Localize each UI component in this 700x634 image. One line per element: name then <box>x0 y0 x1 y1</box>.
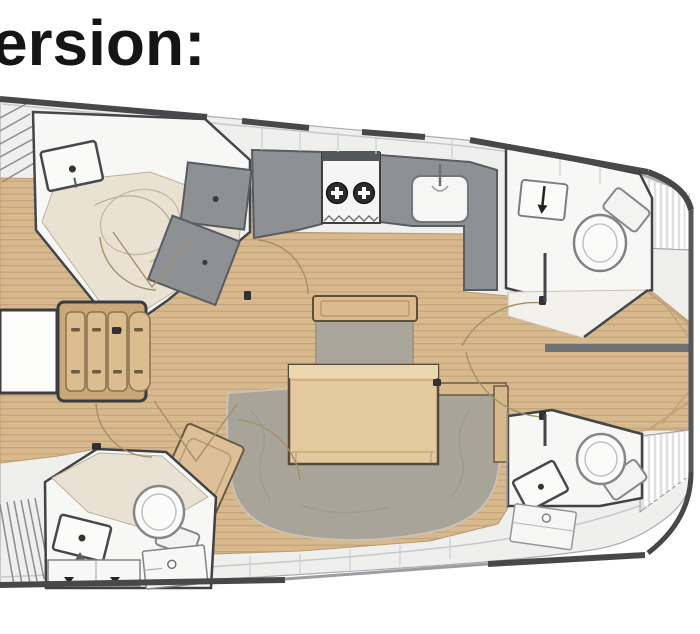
salon-bench <box>313 296 417 321</box>
forward-berth <box>0 302 150 401</box>
salon-table <box>289 365 438 464</box>
burner-left-icon <box>327 183 348 204</box>
forward-berth-platform <box>0 310 57 393</box>
vanity-unit <box>510 504 577 550</box>
washbasin-icon <box>518 180 568 221</box>
salon-backrest-cushion <box>316 321 413 367</box>
floorplan-svg <box>0 0 700 634</box>
companionway-divider <box>545 344 692 352</box>
galley-counter-left <box>252 150 322 238</box>
berth-cushions <box>66 312 150 391</box>
burner-right-icon <box>354 183 375 204</box>
stove-icon <box>322 151 380 223</box>
boat-floorplan-page: ersion: <box>0 0 700 634</box>
